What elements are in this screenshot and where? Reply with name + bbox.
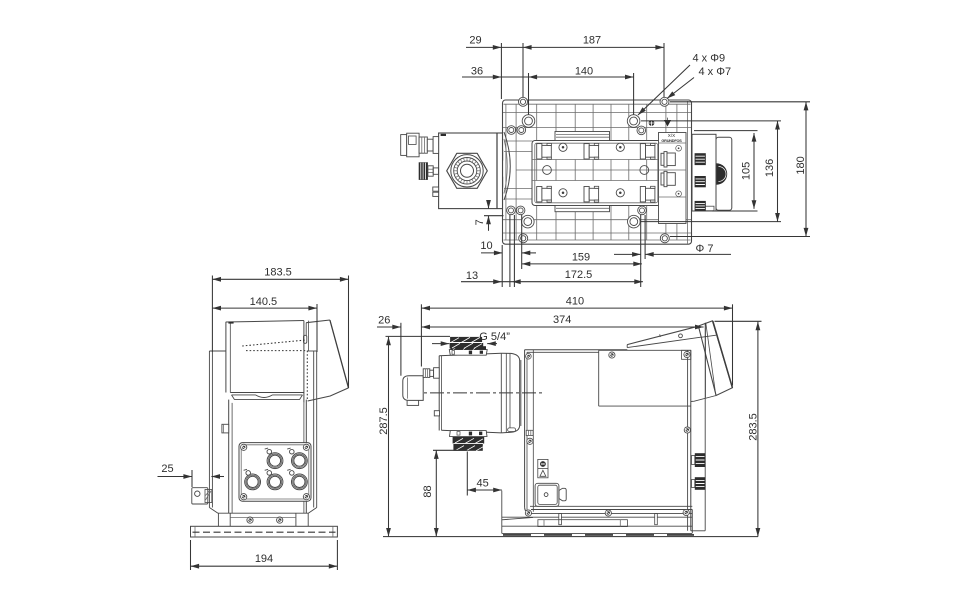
svg-text:Φ 7: Φ 7 — [696, 243, 714, 255]
svg-text:180: 180 — [795, 156, 807, 174]
svg-text:172.5: 172.5 — [565, 269, 593, 281]
svg-text:X/X: X/X — [668, 133, 675, 138]
svg-text:183.5: 183.5 — [264, 266, 292, 278]
svg-text:287.5: 287.5 — [378, 407, 390, 435]
svg-text:140: 140 — [575, 66, 593, 78]
svg-text:7: 7 — [474, 219, 486, 225]
svg-text:187: 187 — [583, 35, 601, 47]
svg-text:G 5/4”: G 5/4” — [479, 331, 510, 343]
svg-text:88: 88 — [422, 485, 434, 497]
svg-text:374: 374 — [553, 314, 571, 326]
svg-text:25: 25 — [161, 463, 173, 475]
svg-text:140.5: 140.5 — [250, 296, 278, 308]
svg-text:29: 29 — [469, 35, 481, 47]
svg-text:136: 136 — [764, 159, 776, 177]
svg-text:10: 10 — [480, 240, 492, 252]
svg-text:4 x Φ9: 4 x Φ9 — [693, 53, 726, 65]
svg-text:283.5: 283.5 — [747, 413, 759, 441]
svg-text:GRUNDFOS: GRUNDFOS — [661, 139, 682, 143]
svg-text:159: 159 — [572, 251, 590, 263]
svg-text:45: 45 — [476, 478, 488, 490]
svg-text:26: 26 — [378, 314, 390, 326]
svg-text:36: 36 — [471, 66, 483, 78]
svg-text:410: 410 — [566, 295, 584, 307]
svg-text:13: 13 — [466, 270, 478, 282]
svg-text:194: 194 — [255, 553, 273, 565]
svg-text:105: 105 — [740, 162, 752, 180]
svg-text:4 x Φ7: 4 x Φ7 — [699, 66, 732, 78]
